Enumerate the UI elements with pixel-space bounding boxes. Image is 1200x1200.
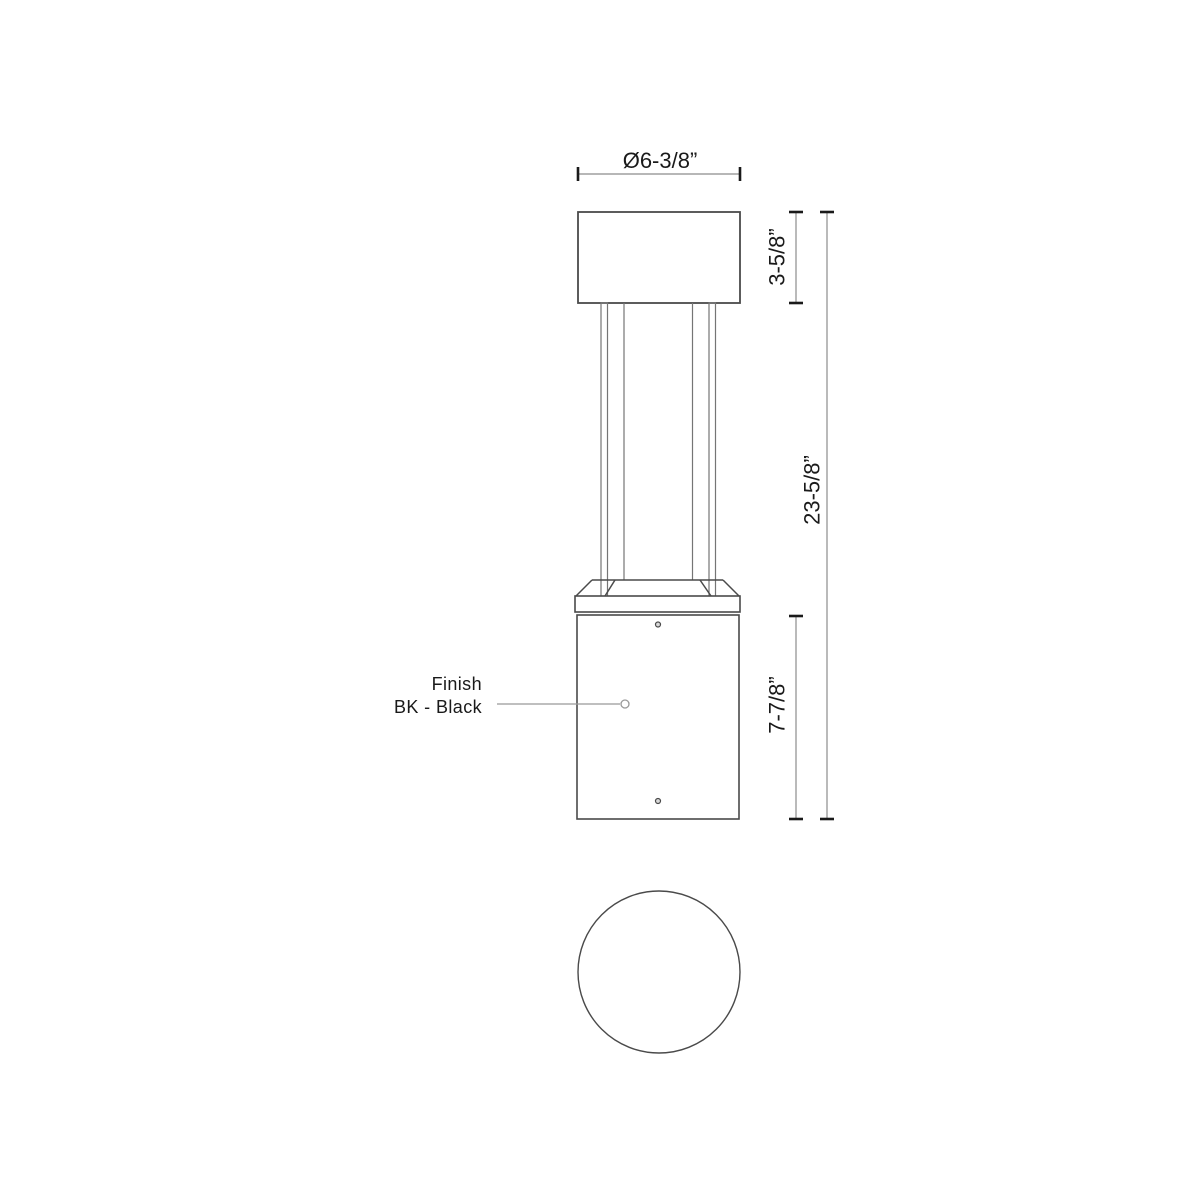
diameter-dimension-label: Ø6-3/8”: [623, 148, 698, 173]
screw-bottom: [656, 799, 661, 804]
cap-height-dimension: 3-5/8”: [765, 212, 803, 303]
screw-top: [656, 622, 661, 627]
overall-height-dimension-label: 23-5/8”: [800, 455, 825, 525]
base-flange: [575, 596, 740, 612]
left-post: [601, 303, 608, 597]
base-height-dimension-label: 7-7/8”: [765, 676, 790, 733]
finish-callout-value: BK - Black: [394, 697, 483, 717]
cap-height-dimension-label: 3-5/8”: [765, 228, 790, 285]
overall-height-dimension: 23-5/8”: [800, 212, 834, 819]
top-view-circle: [578, 891, 740, 1053]
right-post: [709, 303, 716, 597]
cap-outline: [578, 212, 740, 303]
finish-callout-title: Finish: [432, 674, 482, 694]
spec-sheet-canvas: Ø6-3/8”: [0, 0, 1200, 1200]
chamfer-inner-left: [605, 580, 615, 596]
bollard-dimension-drawing: Ø6-3/8”: [0, 0, 1200, 1200]
diameter-dimension: Ø6-3/8”: [578, 148, 740, 181]
base-body: [577, 615, 739, 819]
chamfer-outer-right: [723, 580, 739, 596]
top-view: [578, 891, 740, 1053]
base-height-dimension: 7-7/8”: [765, 616, 803, 819]
front-view: [575, 212, 740, 819]
chamfer-outer-left: [576, 580, 592, 596]
finish-leader-dot: [621, 700, 629, 708]
post-lines: [601, 303, 716, 597]
